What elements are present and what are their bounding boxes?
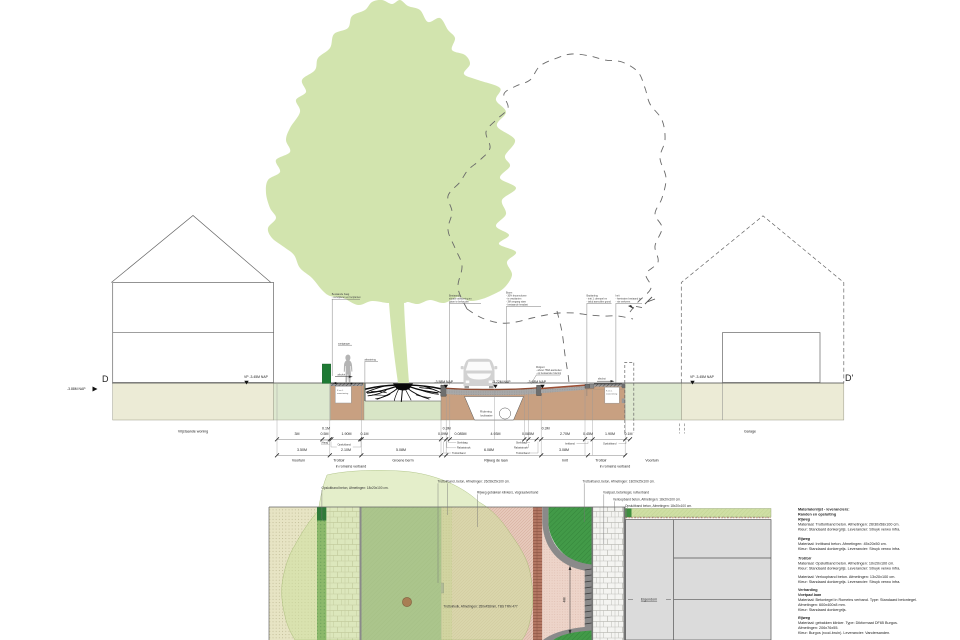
svg-text:0.085M: 0.085M — [522, 432, 534, 436]
svg-text:4M: 4M — [563, 598, 567, 603]
svg-text:Voetpad, betontegel, ruitverba: Voetpad, betontegel, ruitverband — [603, 490, 649, 494]
svg-text:Inrit: Inrit — [562, 458, 568, 462]
svg-text:2.70M: 2.70M — [560, 432, 570, 436]
svg-text:Rijweg: Rijweg — [798, 616, 811, 620]
svg-text:Opsluitband beton, Afmetingen:: Opsluitband beton, Afmetingen: 18x20x100… — [322, 486, 389, 490]
svg-text:Opsluitband: Opsluitband — [338, 443, 352, 446]
svg-text:/vuilwater: /vuilwater — [480, 414, 493, 418]
svg-text:0.3M: 0.3M — [443, 427, 451, 431]
svg-text:Rabatstrook: Rabatstrook — [457, 447, 471, 450]
svg-text:Materiaal: Inritband beton. Af: Materiaal: Inritband beton. Afmetingen: … — [798, 542, 887, 546]
svg-text:Voortuin: Voortuin — [292, 458, 305, 462]
svg-text:afschot: afschot — [338, 373, 346, 376]
svg-text:Trottoirkolk, Afmetingen: 350x: Trottoirkolk, Afmetingen: 350x458mm, TBS… — [444, 605, 518, 609]
svg-text:Kleur: Standaard donkergrijs.: Kleur: Standaard donkergrijs. Leverancie… — [798, 528, 900, 532]
svg-text:in romeins verband: in romeins verband — [336, 464, 367, 468]
svg-text:5.08M: 5.08M — [396, 448, 406, 452]
svg-text:3M: 3M — [295, 432, 300, 436]
svg-text:in romeins verband: in romeins verband — [600, 464, 631, 468]
svg-text:Verloopband beton, Afmetingen:: Verloopband beton, Afmetingen: 18x20x100… — [613, 497, 681, 501]
svg-text:Kleur: Standaard donkergrijs.: Kleur: Standaard donkergrijs. Leverancie… — [798, 567, 900, 571]
svg-text:voorziening: voorziening — [606, 392, 618, 395]
svg-text:Opsluitband: Opsluitband — [603, 442, 617, 445]
svg-text:Voetpad laan: Voetpad laan — [798, 593, 822, 597]
svg-text:Rijweg de laan: Rijweg de laan — [484, 458, 508, 462]
svg-text:voetganger: voetganger — [338, 342, 350, 345]
svg-text:Materiaal: Verloopband beton.: Materiaal: Verloopband beton. Afmetingen… — [798, 575, 895, 579]
svg-text:-3.68M NAP: -3.68M NAP — [528, 380, 547, 384]
svg-text:3.50M: 3.50M — [297, 448, 307, 452]
svg-text:-3.72M NAP: -3.72M NAP — [492, 380, 511, 384]
svg-text:Kleur: Standaard donkergrijs.: Kleur: Standaard donkergrijs. Leverancie… — [798, 580, 900, 584]
svg-text:0.1M: 0.1M — [322, 427, 330, 431]
svg-text:VP -3.45M NAP: VP -3.45M NAP — [244, 375, 269, 379]
svg-text:Materiaal: gebakken klinker. T: Materiaal: gebakken klinker. Type: Dikfo… — [798, 621, 898, 625]
svg-text:afschot: afschot — [598, 377, 606, 380]
svg-text:Materiaal: Opsluitband beton.: Materiaal: Opsluitband beton. Afmetingen… — [798, 562, 894, 566]
svg-text:K en L: K en L — [337, 390, 344, 392]
svg-text:Eigendom: Eigendom — [641, 598, 657, 602]
svg-text:Kleur: Burgos (rood-bruin). Le: Kleur: Burgos (rood-bruin). Leverancier:… — [798, 631, 890, 635]
svg-text:Afmetingen: 600x400x8 mm.: Afmetingen: 600x400x8 mm. — [798, 603, 846, 607]
svg-text:0.5M: 0.5M — [321, 432, 329, 436]
svg-text:0.09M: 0.09M — [438, 432, 448, 436]
svg-text:Materiaal: Betontegel in Romei: Materiaal: Betontegel in Romeins verband… — [798, 598, 917, 602]
svg-text:Verharding: Verharding — [798, 588, 818, 592]
svg-text:voorziening: voorziening — [337, 392, 349, 395]
svg-text:0.1M: 0.1M — [361, 432, 369, 436]
svg-text:Rijweg: Rijweg — [798, 518, 811, 522]
svg-text:Materialenlijst - leveranciers: Materialenlijst - leveranciers: — [798, 508, 849, 512]
svg-text:K en L: K en L — [606, 391, 613, 393]
svg-text:Rijweg gebakken klinkers, visg: Rijweg gebakken klinkers, visgraadverban… — [477, 490, 539, 494]
svg-text:- talud aanvullen grond: - talud aanvullen grond — [587, 301, 612, 304]
svg-text:D': D' — [845, 373, 853, 383]
svg-text:1.90M: 1.90M — [342, 432, 352, 436]
svg-text:- op bestaande riolering: - op bestaande riolering — [536, 372, 562, 375]
svg-text:2.10M: 2.10M — [341, 448, 351, 452]
svg-text:Trottoirband: Trottoirband — [516, 452, 530, 455]
svg-text:Trottoir: Trottoir — [333, 458, 345, 462]
svg-text:4.93M: 4.93M — [491, 432, 501, 436]
svg-text:Streklaag: Streklaag — [516, 441, 527, 444]
svg-text:0.085M: 0.085M — [455, 432, 467, 436]
svg-text:Voortuin: Voortuin — [645, 458, 658, 462]
svg-text:Trottoirband, beton, Afmetinge: Trottoirband, beton, Afmetingen: 18/20x2… — [583, 479, 655, 483]
svg-text:- bestaande herplant: - bestaande herplant — [506, 304, 528, 307]
svg-text:3.08M: 3.08M — [559, 448, 569, 452]
svg-text:Trottoir: Trottoir — [595, 458, 607, 462]
svg-text:Afmetingen: 206x76x55.: Afmetingen: 206x76x55. — [798, 626, 838, 630]
svg-text:Groene berm: Groene berm — [392, 458, 413, 462]
svg-text:Rabatstrook: Rabatstrook — [514, 447, 528, 450]
svg-text:VP -3.45M NAP: VP -3.45M NAP — [690, 375, 715, 379]
svg-text:Garage: Garage — [744, 430, 756, 434]
svg-text:- nte verkeren: - nte verkeren — [616, 301, 631, 304]
svg-text:1.90M: 1.90M — [605, 432, 615, 436]
svg-text:goten te behouden: goten te behouden — [449, 301, 470, 304]
svg-text:-3.88M NAP: -3.88M NAP — [67, 387, 86, 391]
svg-text:0.3M: 0.3M — [542, 427, 550, 431]
svg-text:D: D — [102, 374, 109, 384]
svg-text:- verwijderen en herplanten: - verwijderen en herplanten — [332, 296, 362, 299]
svg-text:Trottoirband: Trottoirband — [452, 452, 466, 455]
svg-text:Trottoirband, beton, Afmetinge: Trottoirband, beton, Afmetingen: 26/28x2… — [438, 479, 510, 483]
svg-text:Randen en opsluiting: Randen en opsluiting — [798, 513, 837, 517]
svg-text:0.1M: 0.1M — [625, 432, 633, 436]
svg-text:Trottoir: Trottoir — [798, 557, 812, 561]
svg-text:afrastering: afrastering — [365, 359, 377, 362]
svg-text:Vrijstaande woning: Vrijstaande woning — [178, 430, 208, 434]
svg-text:Inritband: Inritband — [565, 442, 575, 445]
svg-text:Kleur: Standaard donkergrijs.: Kleur: Standaard donkergrijs. — [798, 608, 847, 612]
svg-text:Opsluitband beton, Afmetingen:: Opsluitband beton, Afmetingen: 18x20x100… — [625, 504, 692, 508]
svg-text:-3.58M NAP: -3.58M NAP — [435, 380, 454, 384]
svg-text:Materiaal: Trottoirband beton.: Materiaal: Trottoirband beton. Afmetinge… — [798, 523, 900, 527]
svg-text:Rijweg: Rijweg — [798, 537, 811, 541]
svg-text:6.08M: 6.08M — [484, 448, 494, 452]
svg-text:Streklaag: Streklaag — [457, 441, 468, 444]
svg-text:Kleur: Standaard donkergrijs.: Kleur: Standaard donkergrijs. Leverancie… — [798, 547, 900, 551]
svg-text:0.45M: 0.45M — [583, 432, 593, 436]
